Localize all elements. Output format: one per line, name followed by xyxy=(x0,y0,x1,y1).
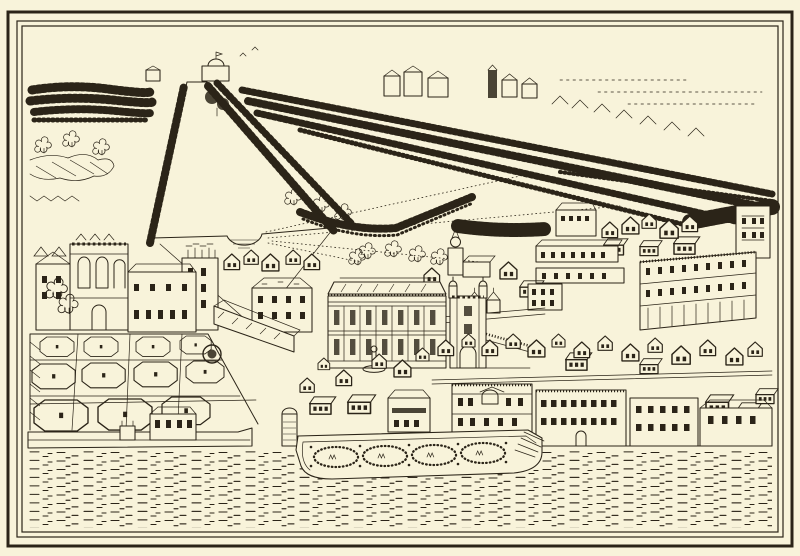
colonnade-range xyxy=(640,252,756,330)
engraving-canvas: Antique line engraving: bird's-eye view … xyxy=(0,0,800,556)
terrace-garden xyxy=(296,430,544,479)
gatehouse xyxy=(70,234,128,330)
engraving-figure: Antique line engraving: bird's-eye view … xyxy=(0,0,800,556)
